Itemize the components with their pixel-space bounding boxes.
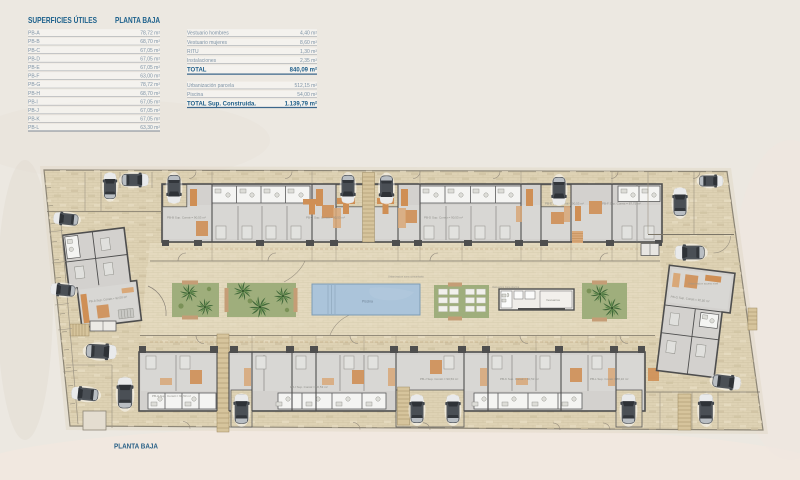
svg-text:63,30 m²: 63,30 m² [140, 125, 160, 131]
svg-text:TOTAL: TOTAL [187, 68, 207, 74]
svg-text:SUPERFICIES ÚTILES: SUPERFICIES ÚTILES [28, 14, 97, 25]
svg-text:78,72 m²: 78,72 m² [140, 31, 160, 37]
svg-text:67,05 m²: 67,05 m² [140, 99, 160, 105]
svg-text:4,40 m²: 4,40 m² [300, 31, 317, 37]
svg-text:67,05 m²: 67,05 m² [140, 56, 160, 62]
svg-text:8,60 m²: 8,60 m² [300, 40, 317, 46]
svg-text:TOTAL Sup. Construida.: TOTAL Sup. Construida. [187, 102, 256, 108]
svg-text:PB-D: PB-D [28, 56, 40, 62]
svg-text:PB-E: PB-E [28, 65, 40, 71]
svg-text:PB-G: PB-G [28, 82, 40, 88]
svg-text:1.139,79 m²: 1.139,79 m² [285, 101, 317, 108]
svg-text:PB-C: PB-C [28, 48, 40, 54]
svg-text:67,05 m²: 67,05 m² [140, 117, 160, 123]
svg-text:PB-A: PB-A [28, 31, 40, 37]
svg-text:512,15 m²: 512,15 m² [294, 83, 317, 89]
svg-text:RITU: RITU [187, 49, 199, 55]
svg-text:PB-H: PB-H [28, 91, 40, 97]
svg-text:PB-K: PB-K [28, 117, 40, 123]
svg-text:68,70 m²: 68,70 m² [140, 39, 160, 45]
svg-text:PB-I: PB-I [28, 99, 38, 105]
svg-text:67,05 m²: 67,05 m² [140, 48, 160, 54]
svg-text:67,05 m²: 67,05 m² [140, 65, 160, 71]
svg-text:PB-J: PB-J [28, 108, 39, 114]
svg-text:1,30 m²: 1,30 m² [300, 49, 317, 55]
svg-text:78,72 m²: 78,72 m² [140, 82, 160, 88]
svg-text:PB-B: PB-B [28, 39, 40, 45]
svg-text:2,35 m²: 2,35 m² [300, 58, 317, 64]
svg-text:Vestuario mujeres: Vestuario mujeres [187, 40, 228, 46]
svg-text:67,05 m²: 67,05 m² [140, 108, 160, 114]
svg-text:54,00 m²: 54,00 m² [297, 92, 317, 98]
svg-text:840,09 m²: 840,09 m² [290, 67, 317, 74]
svg-text:PLANTA BAJA: PLANTA BAJA [114, 442, 159, 451]
svg-text:PB-L: PB-L [28, 125, 39, 131]
svg-text:68,70 m²: 68,70 m² [140, 91, 160, 97]
svg-text:PB-F: PB-F [28, 74, 39, 80]
svg-text:PLANTA BAJA: PLANTA BAJA [115, 16, 160, 25]
svg-text:63,00 m²: 63,00 m² [140, 74, 160, 80]
svg-text:Vestuario hombres: Vestuario hombres [187, 31, 229, 37]
svg-text:Piscina: Piscina [187, 92, 203, 98]
svg-text:Urbanización parcela: Urbanización parcela [187, 83, 234, 89]
svg-text:Instalaciones: Instalaciones [187, 58, 217, 64]
